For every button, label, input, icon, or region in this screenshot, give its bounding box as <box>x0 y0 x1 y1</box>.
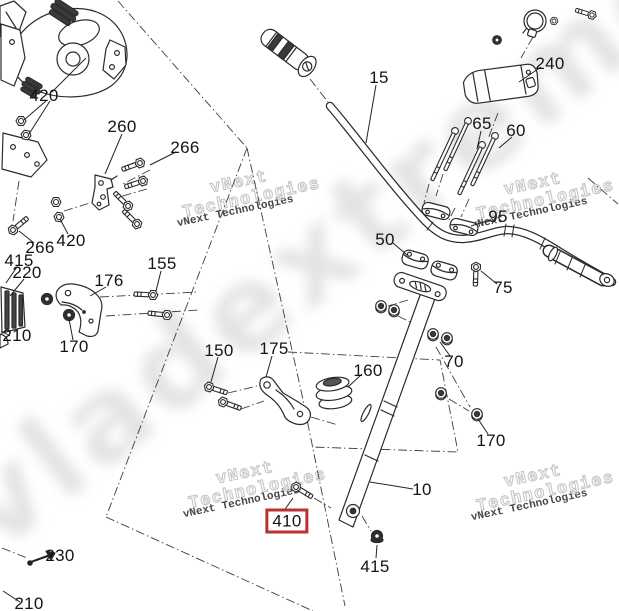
locknut-415 <box>371 530 383 542</box>
clamp-bracket-176 <box>56 284 102 337</box>
parts-diagram-artwork <box>0 0 619 611</box>
bolts-150 <box>203 381 242 412</box>
bolt-410 <box>290 481 315 501</box>
boot-160 <box>314 375 354 411</box>
coupler-220 <box>0 287 25 348</box>
bolt-75 <box>471 262 481 286</box>
steering-stem-10 <box>339 287 437 527</box>
right-grip <box>547 246 617 289</box>
clamp-ring <box>493 6 598 44</box>
pod-240 <box>459 53 543 114</box>
long-bolts-65-60 <box>429 116 500 195</box>
lever-175 <box>260 377 311 425</box>
bolts-155 <box>134 290 172 320</box>
bracket-260 <box>92 175 117 210</box>
cotter-pin <box>359 403 373 422</box>
flange-nuts-170 <box>436 388 483 421</box>
left-grip <box>256 24 319 80</box>
parts-diagram-page: vladextreme.ru vNextTechnologiesvNext Te… <box>0 0 619 611</box>
